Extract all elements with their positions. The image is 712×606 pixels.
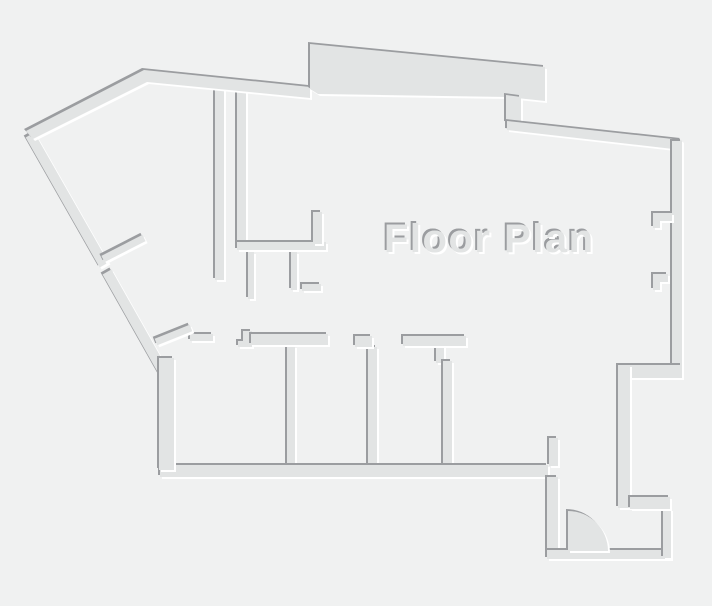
floor-plan-title: Floor Plan xyxy=(384,217,595,261)
floor-plan-page: Floor Plan xyxy=(0,0,712,606)
right-wall-lower xyxy=(618,365,630,508)
entry-wall-top xyxy=(630,497,670,509)
outer-wall-left-lower xyxy=(159,358,174,470)
outer-wall-right xyxy=(672,141,682,372)
room-divider-2 xyxy=(368,347,377,466)
room-top-wall-4 xyxy=(403,336,466,346)
top-band-step xyxy=(506,95,521,124)
closet-stub-1 xyxy=(248,252,254,299)
closet-stub-3 xyxy=(302,284,321,291)
room-top-wall-2 xyxy=(251,334,328,345)
room-divider-3-stub xyxy=(436,344,444,363)
room-divider-1 xyxy=(287,346,295,467)
room-top-wall-1 xyxy=(190,334,213,341)
closet-wall-horizontal xyxy=(237,242,326,250)
closet-stub-2 xyxy=(291,252,297,290)
corridor-wall-left xyxy=(215,88,224,280)
entry-stub-up xyxy=(549,438,558,466)
entry-bottom-wall xyxy=(547,550,671,559)
floor-plan-canvas: Floor Plan xyxy=(0,0,712,606)
rooms-bottom-wall xyxy=(160,465,548,477)
corridor-wall-right xyxy=(237,90,246,249)
room-divider-3 xyxy=(443,361,452,466)
room-top-wall-3 xyxy=(355,336,372,347)
entry-wall-left xyxy=(547,477,558,558)
entry-wall-right xyxy=(663,509,671,558)
closet-stub-up xyxy=(313,212,322,244)
